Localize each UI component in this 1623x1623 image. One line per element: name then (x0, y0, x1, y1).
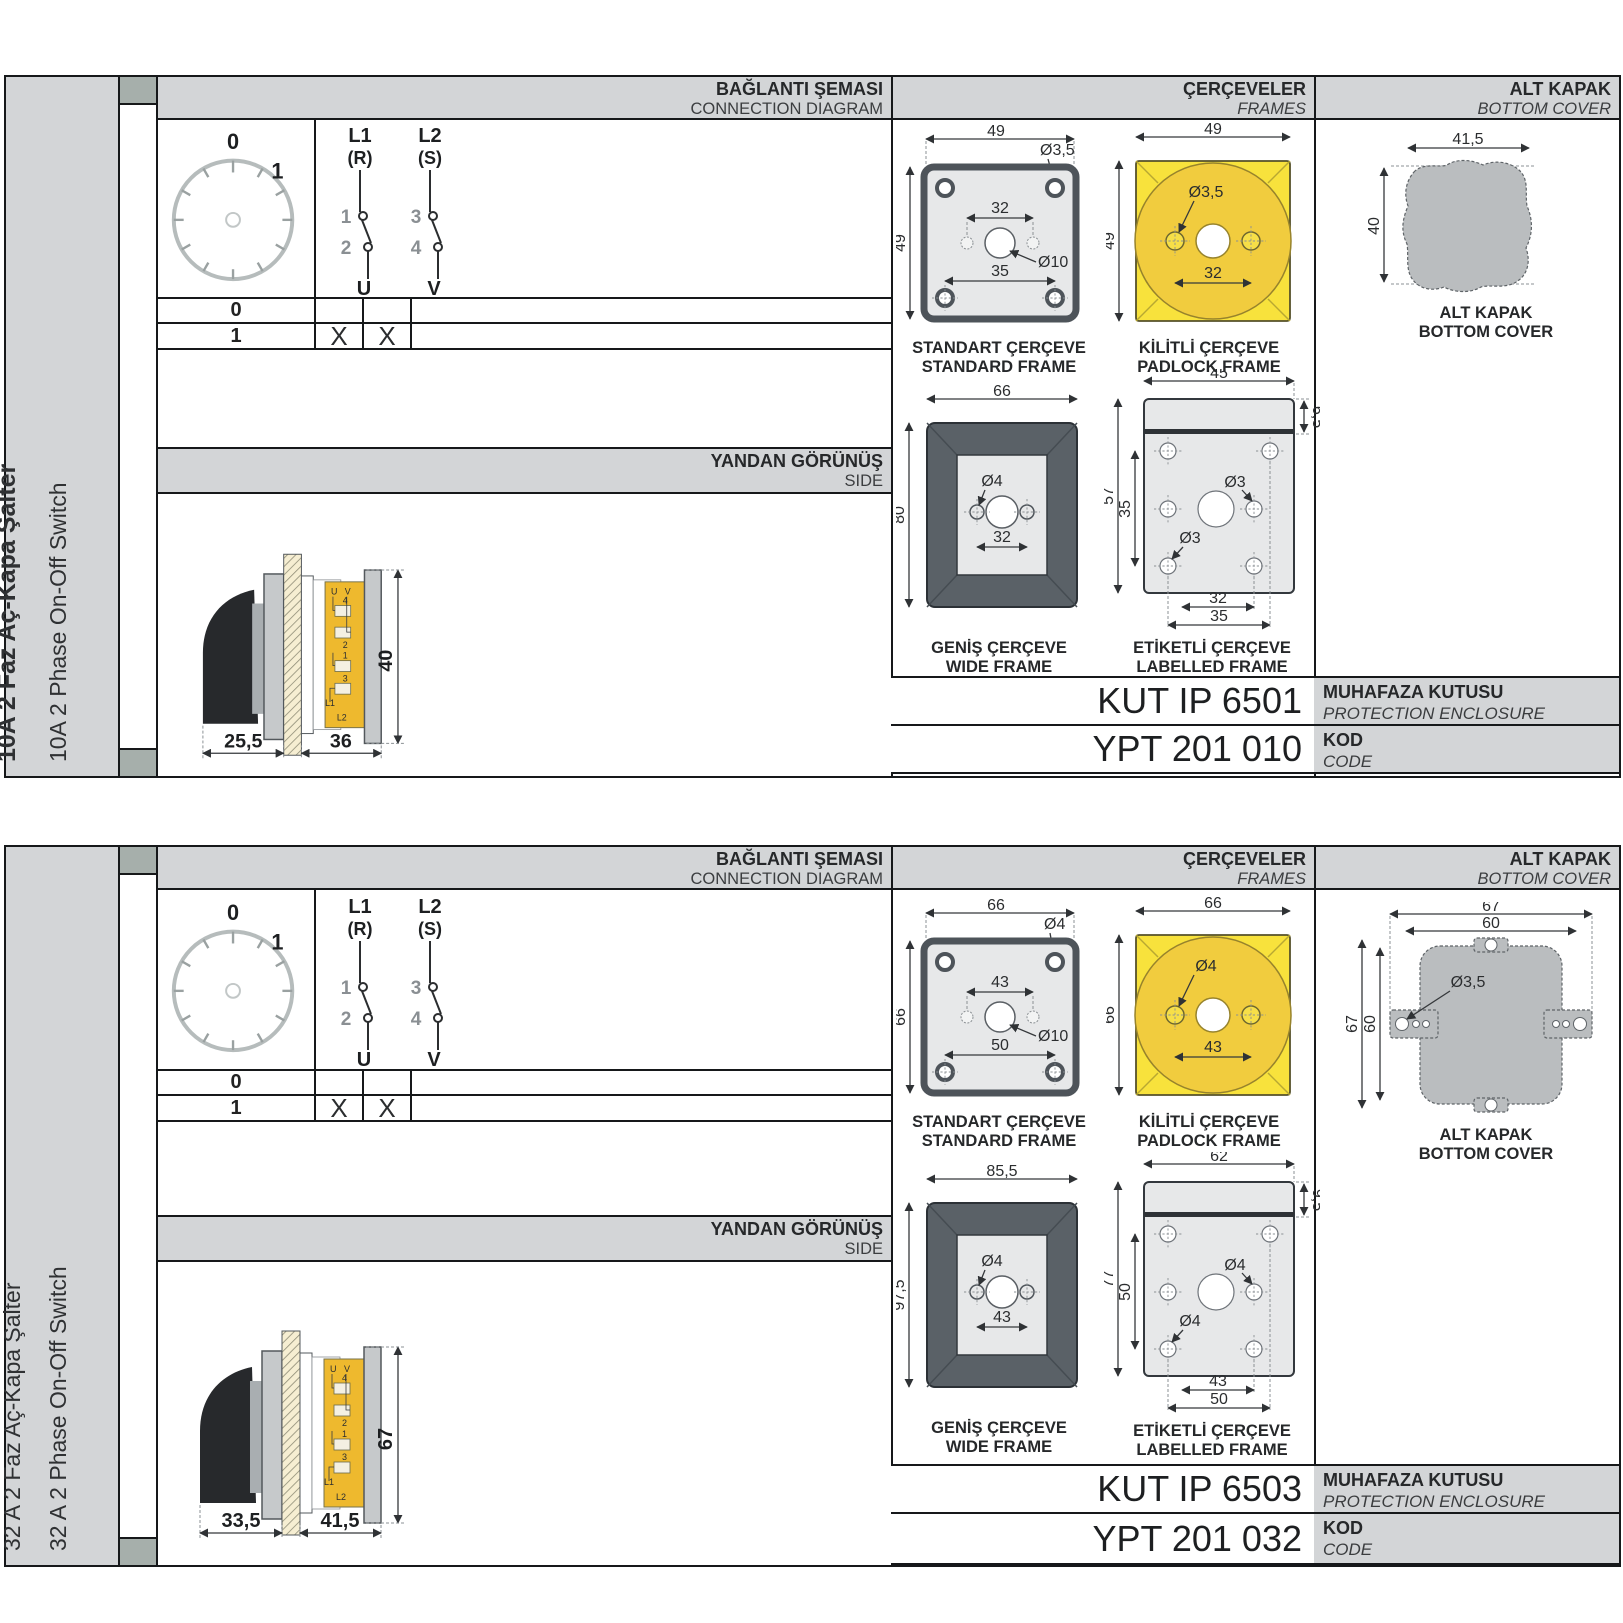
svg-text:77: 77 (1104, 1270, 1117, 1288)
svg-text:Ø10: Ø10 (1038, 254, 1068, 271)
spine-cap-bottom (120, 1537, 156, 1565)
svg-text:43: 43 (1204, 1039, 1222, 1056)
padlock-frame-block: 66 Ø4 43 66 KİLİTLİ ÇERÇEVEPADLOCK FRAME (1106, 897, 1312, 1151)
position-table-row-0: 0 (158, 1069, 891, 1096)
contact-u-state: X (316, 324, 364, 348)
frame-label: STANDART ÇERÇEVESTANDARD FRAME (896, 339, 1102, 377)
product-title-tr: 10A 2 Faz Aç-Kapa Şalter (0, 464, 22, 762)
connection-diagram-header: BAĞLANTI ŞEMASI CONNECTION DIAGRAM (158, 847, 891, 890)
svg-text:66: 66 (896, 1008, 909, 1026)
svg-text:40: 40 (1366, 217, 1383, 235)
svg-text:Ø3: Ø3 (1224, 474, 1245, 491)
mounting-panel-hatch (282, 1331, 300, 1535)
frame-label: ETİKETLİ ÇERÇEVELABELLED FRAME (1104, 1422, 1320, 1460)
product-sidebar: 10A 2 Faz Aç-Kapa Şalter 10A 2 Phase On-… (6, 77, 120, 776)
svg-text:Ø3: Ø3 (1179, 530, 1200, 547)
svg-text:43: 43 (991, 974, 1009, 991)
frame-label: GENİŞ ÇERÇEVEWIDE FRAME (896, 639, 1102, 677)
svg-text:L1: L1 (348, 896, 371, 918)
dim-front-depth: 33,5 (222, 1510, 261, 1532)
svg-text:67: 67 (1346, 1015, 1361, 1033)
order-code-label: KODCODE (1314, 1512, 1619, 1565)
svg-text:62: 62 (1210, 1152, 1228, 1165)
enclosure-code-value: KUT IP 6503 (891, 1464, 1314, 1514)
labelled-frame-block: 45 6,5 Ø3 Ø3 (1104, 369, 1320, 677)
header-tr: ÇERÇEVELER (893, 849, 1306, 869)
order-code-label: KODCODE (1314, 724, 1619, 774)
labelled-frame-block: 62 9,5 Ø4 Ø4 (1104, 1152, 1320, 1460)
product-section-32a: 32 A 2 Faz Aç-Kapa Şalter 32 A 2 Phase O… (4, 845, 1621, 1567)
position-label: 0 (158, 299, 316, 322)
switch-dial-cell: 0 1 (158, 120, 316, 297)
order-code-value: YPT 201 032 (891, 1512, 1314, 1565)
side-view-header: YANDAN GÖRÜNÜŞ SIDE (158, 447, 891, 494)
wide-frame-drawing: 66 Ø4 32 80 (896, 385, 1102, 637)
bottom-cover-header: ALT KAPAK BOTTOM COVER (1316, 77, 1619, 120)
svg-text:1: 1 (343, 651, 348, 661)
position-label: 1 (158, 324, 316, 348)
header-en: SIDE (158, 471, 883, 491)
contact-v-state: X (364, 1096, 412, 1120)
svg-text:66: 66 (993, 385, 1011, 400)
frames-header: ÇERÇEVELER FRAMES (893, 847, 1314, 890)
dial-pos-1: 1 (271, 929, 283, 954)
svg-text:Ø4: Ø4 (981, 1253, 1002, 1270)
header-en: CONNECTION DIAGRAM (158, 869, 883, 889)
svg-text:35: 35 (991, 263, 1009, 280)
mounting-panel-hatch (284, 554, 302, 755)
dim-back-depth: 36 (330, 730, 352, 752)
svg-text:32: 32 (1204, 265, 1222, 282)
svg-text:2: 2 (342, 1418, 347, 1428)
spine-column (120, 77, 158, 776)
product-sidebar: 32 A 2 Faz Aç-Kapa Şalter 32 A 2 Phase O… (6, 847, 120, 1565)
product-title-en: 10A 2 Phase On-Off Switch (45, 482, 72, 762)
svg-text:V: V (427, 278, 441, 297)
svg-text:9,5: 9,5 (1309, 1189, 1320, 1211)
svg-text:L2: L2 (337, 713, 347, 723)
spine-column (120, 847, 158, 1565)
svg-text:49: 49 (987, 123, 1005, 140)
bottom-cover-block: 67 60 67 60 Ø3,5 ALT KAPAKBOTTOM COVER (1346, 902, 1623, 1164)
contact-u-state: X (316, 1096, 364, 1120)
contact-u-state (316, 299, 364, 322)
header-tr: YANDAN GÖRÜNÜŞ (158, 1219, 883, 1239)
header-tr: BAĞLANTI ŞEMASI (158, 849, 883, 869)
svg-text:Ø4: Ø4 (1195, 958, 1216, 975)
svg-text:1: 1 (341, 207, 352, 228)
labelled-frame-drawing: 45 6,5 Ø3 Ø3 (1104, 369, 1320, 637)
dial-diagram: 0 1 (158, 120, 314, 297)
position-table-row-1: 1 X X (158, 324, 891, 350)
side-view-drawing: U V 4 2 1 3 L1 L2 67 (166, 1277, 626, 1555)
svg-text:Ø3,5: Ø3,5 (1451, 974, 1486, 991)
svg-text:3: 3 (411, 978, 422, 999)
switch-handle (200, 1367, 256, 1503)
svg-text:L1: L1 (348, 125, 371, 147)
frame-label: ETİKETLİ ÇERÇEVELABELLED FRAME (1104, 639, 1320, 677)
svg-text:50: 50 (1210, 1391, 1228, 1408)
contact-v-state: X (364, 324, 412, 348)
table-filler (412, 324, 891, 348)
contact-schematic: L1 (R) L2 (S) U V 1 2 3 4 (316, 890, 891, 1069)
position-label: 0 (158, 1071, 316, 1094)
position-label: 1 (158, 1096, 316, 1120)
header-en: SIDE (158, 1239, 883, 1259)
svg-text:50: 50 (991, 1037, 1009, 1054)
header-tr: ÇERÇEVELER (893, 79, 1306, 99)
padlock-frame-drawing: 66 Ø4 43 66 (1106, 897, 1312, 1111)
svg-text:45: 45 (1210, 369, 1228, 382)
contact-v-state (364, 1071, 412, 1094)
contact-schematic: L1 (R) L2 (S) U V 1 2 3 4 (316, 120, 891, 297)
header-tr: ALT KAPAK (1316, 79, 1611, 99)
svg-text:57: 57 (1104, 487, 1117, 505)
frames-header: ÇERÇEVELER FRAMES (893, 77, 1314, 120)
svg-text:3: 3 (342, 1452, 347, 1462)
order-code-value: YPT 201 010 (891, 724, 1314, 774)
standard-frame-block: 49 Ø3,5 32 Ø10 35 49 STANDART ÇERÇEVESTA… (896, 123, 1102, 377)
svg-text:U: U (357, 278, 371, 297)
svg-text:66: 66 (1204, 897, 1222, 912)
svg-text:L2: L2 (418, 896, 441, 918)
svg-text:V: V (427, 1049, 441, 1069)
svg-text:80: 80 (896, 506, 908, 524)
svg-text:(S): (S) (418, 148, 442, 168)
header-en: BOTTOM COVER (1316, 869, 1611, 889)
header-en: FRAMES (893, 99, 1306, 119)
contact-schematic-cell: L1 (R) L2 (S) U V 1 2 3 4 (316, 890, 891, 1069)
svg-text:35: 35 (1210, 608, 1228, 625)
dial-diagram: 0 1 (158, 890, 314, 1069)
svg-text:3: 3 (343, 673, 348, 683)
svg-text:1: 1 (342, 1429, 347, 1439)
dial-pos-0: 0 (227, 900, 239, 925)
enclosure-code-label: MUHAFAZA KUTUSUPROTECTION ENCLOSURE (1314, 676, 1619, 726)
svg-text:Ø4: Ø4 (1044, 916, 1065, 933)
panel-divider (891, 77, 893, 776)
svg-text:Ø3,5: Ø3,5 (1189, 184, 1224, 201)
bottom-cover-block: 41,5 40 ALT KAPAKBOTTOM COVER (1351, 132, 1621, 342)
product-title-tr: 32 A 2 Faz Aç-Kapa Şalter (0, 1283, 26, 1552)
connection-diagram-header: BAĞLANTI ŞEMASI CONNECTION DIAGRAM (158, 77, 891, 120)
svg-text:60: 60 (1362, 1015, 1379, 1033)
svg-text:32: 32 (991, 200, 1009, 217)
svg-text:50: 50 (1117, 1283, 1134, 1301)
enclosure-code-value: KUT IP 6501 (891, 676, 1314, 726)
svg-text:2: 2 (341, 1009, 352, 1030)
position-table-row-1: 1 X X (158, 1096, 891, 1122)
wide-frame-block: 85,5 Ø4 43 97,5 GENİŞ ÇERÇEVEWIDE FRAME (896, 1165, 1102, 1457)
header-en: CONNECTION DIAGRAM (158, 99, 883, 119)
svg-text:49: 49 (1204, 123, 1222, 138)
svg-text:49: 49 (896, 234, 909, 252)
dim-front-depth: 25,5 (224, 730, 262, 752)
svg-text:3: 3 (411, 207, 422, 228)
enclosure-code-label: MUHAFAZA KUTUSUPROTECTION ENCLOSURE (1314, 1464, 1619, 1514)
spine-cap-top (120, 77, 156, 105)
labelled-frame-drawing: 62 9,5 Ø4 Ø4 (1104, 1152, 1320, 1420)
svg-text:2: 2 (341, 238, 352, 259)
contact-v-state (364, 299, 412, 322)
frame-label: STANDART ÇERÇEVESTANDARD FRAME (896, 1113, 1102, 1151)
svg-text:Ø10: Ø10 (1038, 1028, 1068, 1045)
svg-text:6,5: 6,5 (1309, 406, 1320, 428)
table-filler (412, 1096, 891, 1120)
dial-pos-1: 1 (271, 158, 283, 183)
svg-text:66: 66 (987, 897, 1005, 914)
switch-handle (203, 590, 258, 724)
header-en: FRAMES (893, 869, 1306, 889)
svg-text:L2: L2 (418, 125, 441, 147)
padlock-frame-drawing: 49 Ø3,5 32 49 (1106, 123, 1312, 337)
svg-text:4: 4 (411, 238, 422, 259)
bottom-cover-label: ALT KAPAKBOTTOM COVER (1346, 1126, 1623, 1164)
svg-text:(S): (S) (418, 919, 442, 939)
table-filler (412, 299, 891, 322)
spine-cap-top (120, 847, 156, 875)
frame-label: KİLİTLİ ÇERÇEVEPADLOCK FRAME (1106, 1113, 1312, 1151)
side-view-drawing: U V 4 2 1 3 L1 L2 40 (166, 505, 626, 771)
standard-frame-block: 66 Ø4 43 Ø10 50 66 STANDART ÇERÇEVESTAND… (896, 897, 1102, 1151)
svg-text:66: 66 (1106, 1006, 1118, 1024)
padlock-frame-block: 49 Ø3,5 32 49 KİLİTLİ ÇERÇEVEPADLOCK FRA… (1106, 123, 1312, 377)
svg-text:(R): (R) (348, 919, 373, 939)
standard-frame-drawing: 66 Ø4 43 Ø10 50 66 (896, 897, 1102, 1111)
svg-text:Ø4: Ø4 (981, 473, 1002, 490)
header-tr: YANDAN GÖRÜNÜŞ (158, 451, 883, 471)
svg-text:L2: L2 (336, 1492, 346, 1502)
wide-frame-block: 66 Ø4 32 80 GENİŞ ÇERÇEVEWIDE FRAME (896, 385, 1102, 677)
svg-text:43: 43 (1209, 1373, 1227, 1390)
svg-text:43: 43 (993, 1309, 1011, 1326)
bottom-cover-drawing: 41,5 40 (1351, 132, 1621, 302)
switch-dial-cell: 0 1 (158, 890, 316, 1069)
svg-text:4: 4 (411, 1009, 422, 1030)
frame-label: GENİŞ ÇERÇEVEWIDE FRAME (896, 1419, 1102, 1457)
standard-frame-drawing: 49 Ø3,5 32 Ø10 35 49 (896, 123, 1102, 337)
svg-text:97,5: 97,5 (896, 1279, 908, 1310)
header-en: BOTTOM COVER (1316, 99, 1611, 119)
svg-text:60: 60 (1482, 915, 1500, 932)
svg-text:Ø4: Ø4 (1179, 1313, 1200, 1330)
svg-text:Ø4: Ø4 (1224, 1257, 1245, 1274)
svg-text:35: 35 (1117, 500, 1134, 518)
bottom-cover-header: ALT KAPAK BOTTOM COVER (1316, 847, 1619, 890)
svg-text:Ø3,5: Ø3,5 (1040, 142, 1075, 159)
wide-frame-drawing: 85,5 Ø4 43 97,5 (896, 1165, 1102, 1417)
svg-text:1: 1 (341, 978, 352, 999)
svg-text:32: 32 (1209, 590, 1227, 607)
position-table-row-0: 0 (158, 297, 891, 324)
dial-pos-0: 0 (227, 129, 239, 154)
dim-height: 67 (375, 1428, 397, 1450)
svg-text:2: 2 (343, 640, 348, 650)
contact-schematic-cell: L1 (R) L2 (S) U V 1 2 3 4 (316, 120, 891, 297)
dim-height: 40 (375, 650, 397, 672)
svg-text:U: U (357, 1049, 371, 1069)
dim-back-depth: 41,5 (321, 1510, 360, 1532)
svg-text:41,5: 41,5 (1452, 132, 1483, 148)
header-tr: ALT KAPAK (1316, 849, 1611, 869)
side-view-header: YANDAN GÖRÜNÜŞ SIDE (158, 1215, 891, 1262)
product-title-en: 32 A 2 Phase On-Off Switch (45, 1266, 72, 1551)
svg-text:85,5: 85,5 (986, 1165, 1017, 1180)
svg-text:(R): (R) (348, 148, 373, 168)
bottom-cover-label: ALT KAPAKBOTTOM COVER (1351, 304, 1621, 342)
product-section-10a: 10A 2 Faz Aç-Kapa Şalter 10A 2 Phase On-… (4, 75, 1621, 778)
bottom-cover-drawing: 67 60 67 60 Ø3,5 (1346, 902, 1623, 1124)
svg-text:67: 67 (1482, 902, 1500, 915)
svg-text:U: U (331, 587, 337, 597)
panel-divider (891, 847, 893, 1565)
table-filler (412, 1071, 891, 1094)
header-tr: BAĞLANTI ŞEMASI (158, 79, 883, 99)
svg-text:U: U (330, 1364, 337, 1374)
spine-cap-bottom (120, 748, 156, 776)
svg-text:32: 32 (993, 529, 1011, 546)
contact-u-state (316, 1071, 364, 1094)
svg-text:49: 49 (1106, 232, 1118, 250)
